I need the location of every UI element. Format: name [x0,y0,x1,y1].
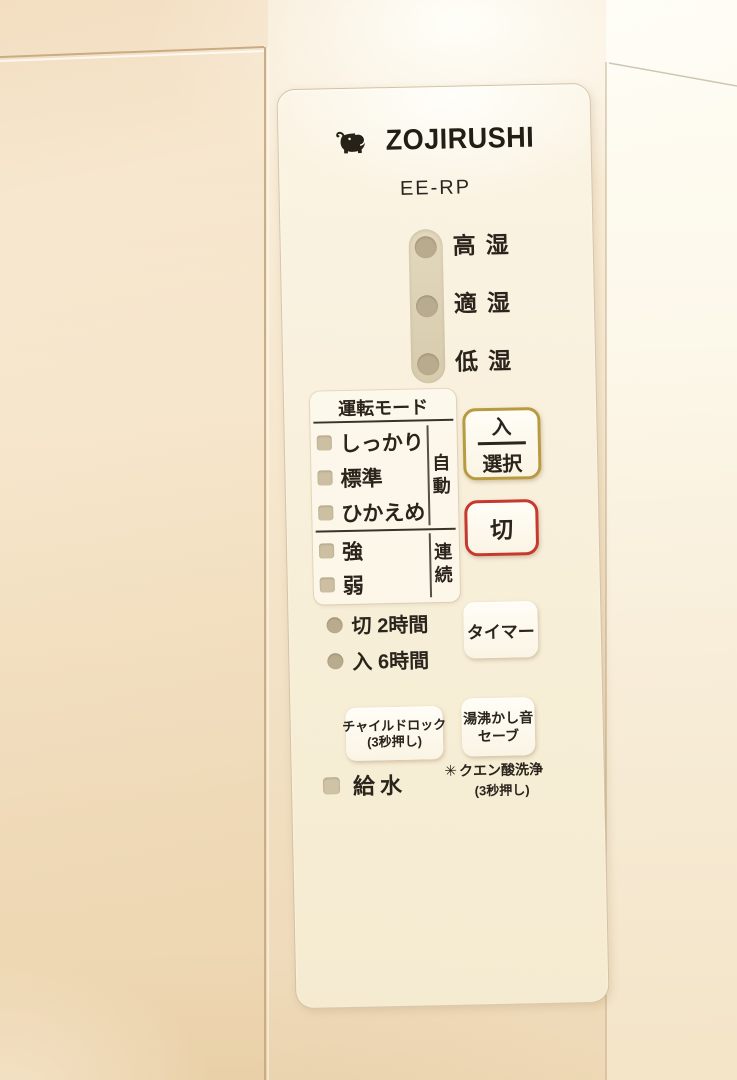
water-refill-led [323,777,340,794]
timer-off-2h-led [326,617,342,633]
mode-hikaeme-label: ひかえめ [341,496,426,528]
body-right-section [606,0,737,1080]
power-select-top-label: 入 [491,411,512,440]
timer-on-6h-led [327,653,343,669]
high-humidity-label: 高湿 [452,229,573,260]
low-humidity-label: 低湿 [455,345,576,376]
mode-standard-led [317,470,332,485]
continuous-group-label: 連続 [430,541,457,588]
elephant-icon [334,125,379,157]
power-select-divider [478,441,526,445]
citric-clean-note: (3秒押し) [462,779,542,800]
mode-weak-led [320,577,335,592]
boil-sound-save-label-1: 湯沸かし音 [463,708,533,727]
brand-logo: ZOJIRUSHI [278,114,591,165]
mode-strong-label: 強 [342,536,364,566]
child-lock-button[interactable]: チャイルドロック (3秒押し) [345,706,443,761]
mode-shikkari-label: しっかり [340,426,425,458]
model-number: EE-RP [279,174,591,204]
adequate-humidity-label: 適湿 [454,287,575,318]
mode-hikaeme-led [318,505,333,520]
mode-shikkari-led [317,435,332,450]
off-button-label: 切 [490,511,514,545]
humidity-led-track [408,229,445,384]
child-lock-label: チャイルドロック [342,716,446,734]
water-refill-label: 給水 [353,768,408,801]
auto-group-label: 自動 [428,452,455,499]
timer-button-label: タイマー [467,617,536,643]
mode-weak-label: 弱 [342,570,364,600]
boil-sound-save-label-2: セーブ [478,726,520,745]
citric-clean-row: ✳ クエン酸洗浄 [432,759,556,782]
timer-button[interactable]: タイマー [463,601,538,659]
timer-off-2h-label: 切 2時間 [351,608,428,639]
child-lock-note: (3秒押し) [367,733,422,750]
low-humidity-led [417,353,439,375]
citric-clean-label: クエン酸洗浄 [459,759,543,781]
operation-mode-title: 運転モード [310,393,457,422]
power-select-bottom-label: 選択 [482,447,523,477]
control-panel: ZOJIRUSHI EE-RP 高湿 適湿 低湿 運転モード しっかり 標準 ひ… [276,83,609,1009]
power-select-button[interactable]: 入 選択 [462,407,541,481]
sun-asterisk-icon: ✳ [444,762,457,780]
body-left-section [0,0,268,1080]
operation-mode-box: 運転モード しっかり 標準 ひかえめ 自動 強 弱 連続 [310,389,460,605]
mode-strong-led [319,543,334,558]
timer-on-6h-label: 入 6時間 [352,644,429,675]
mode-group-divider [316,528,456,533]
brand-name: ZOJIRUSHI [385,120,534,156]
mode-standard-label: 標準 [340,462,383,493]
boil-sound-save-button[interactable]: 湯沸かし音 セーブ [461,697,535,757]
high-humidity-led [415,236,437,258]
off-button[interactable]: 切 [464,499,539,557]
adequate-humidity-led [416,295,438,317]
humidifier-photo: ZOJIRUSHI EE-RP 高湿 適湿 低湿 運転モード しっかり 標準 ひ… [0,0,737,1080]
